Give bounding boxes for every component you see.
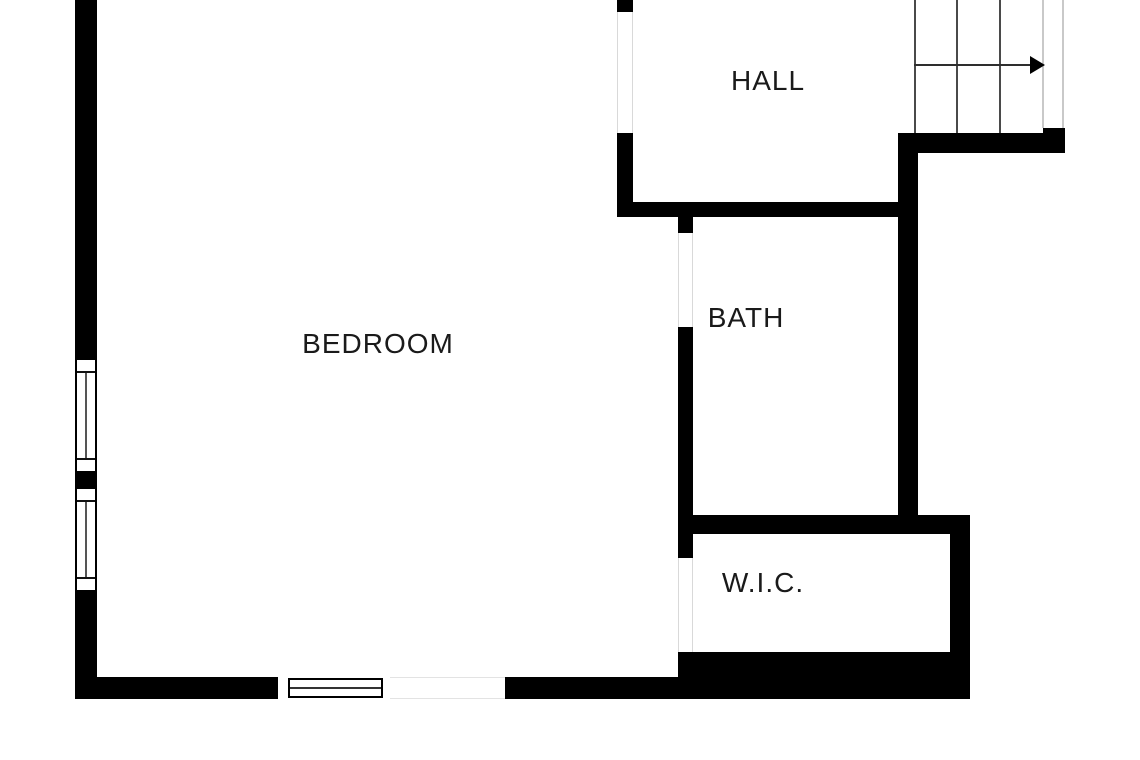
opening-bath-door bbox=[678, 233, 693, 327]
opening-bottom-wall bbox=[390, 677, 505, 699]
room-label-hall: HALL bbox=[731, 65, 805, 97]
wall-bath-left-stub bbox=[678, 217, 693, 233]
wall-hall-bottom bbox=[617, 202, 918, 217]
wall-bath-right bbox=[898, 133, 918, 534]
stair-tread-line-icon bbox=[999, 0, 1001, 133]
window-mullion-icon bbox=[290, 687, 381, 689]
window-mullion-icon bbox=[85, 502, 87, 577]
wall-bottom-left bbox=[75, 677, 278, 699]
wall-left-upper bbox=[75, 0, 97, 358]
opening-hall-door bbox=[617, 12, 633, 133]
wall-bottom-mid bbox=[505, 677, 678, 699]
stair-side-wall-line-icon bbox=[1062, 0, 1064, 128]
wall-stairs-bottom bbox=[898, 133, 1065, 153]
opening-wic-door bbox=[678, 558, 693, 652]
window-sill-icon bbox=[77, 577, 95, 579]
window-bottom bbox=[288, 678, 383, 698]
wall-wic-top bbox=[678, 515, 970, 534]
wall-bath-left bbox=[678, 327, 693, 558]
stair-direction-arrow-head-icon bbox=[1030, 56, 1045, 74]
stair-tread-line-icon bbox=[914, 0, 916, 133]
wall-stairs-bottom-cap bbox=[1043, 128, 1065, 153]
stair-tread-line-icon bbox=[956, 0, 958, 133]
room-label-bath: BATH bbox=[708, 302, 785, 334]
window-left-lower bbox=[75, 487, 97, 592]
window-mullion-icon bbox=[85, 373, 87, 458]
wall-hall-left bbox=[617, 133, 633, 202]
wall-hall-left-stub bbox=[617, 0, 633, 12]
room-label-bedroom: BEDROOM bbox=[302, 328, 454, 360]
room-label-wic: W.I.C. bbox=[722, 567, 804, 599]
stair-direction-arrow-shaft-icon bbox=[914, 64, 1031, 66]
wall-wic-bottom bbox=[678, 652, 970, 699]
wall-left-between-windows bbox=[75, 473, 97, 487]
floor-plan-canvas: BEDROOM HALL BATH W.I.C. bbox=[0, 0, 1140, 760]
window-left-upper bbox=[75, 358, 97, 473]
window-sill-icon bbox=[77, 458, 95, 460]
